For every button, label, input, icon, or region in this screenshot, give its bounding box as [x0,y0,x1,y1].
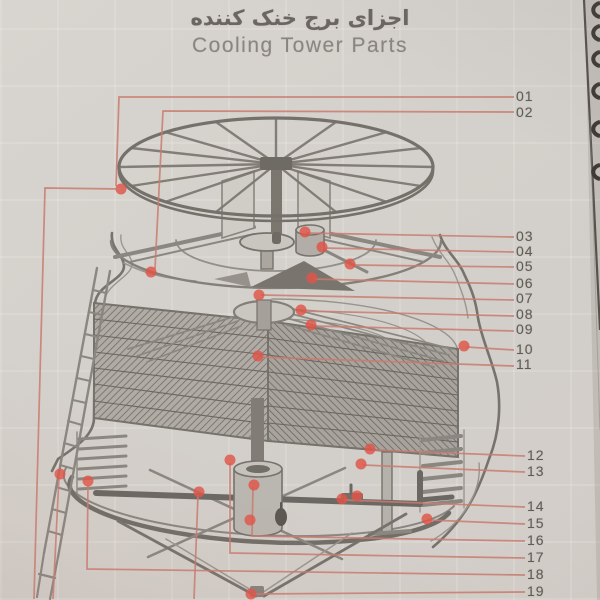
leader-line [155,111,514,269]
leader-dot [194,487,205,498]
leader-line [303,311,514,316]
leader-dot [146,267,157,278]
leader-dot [300,227,311,238]
part-label: 11 [516,355,533,373]
leader-dot [245,515,256,526]
leader-dot [55,469,66,480]
part-label: 15 [527,514,545,532]
sprinkler-head [240,233,294,269]
part-label: 05 [516,257,534,275]
leader-line [313,326,514,331]
part-label: 17 [527,548,545,566]
leader-dot [337,494,348,505]
leader-dot [225,455,236,466]
leader-dot [249,480,260,491]
leader-line [429,520,525,524]
part-label: 19 [527,582,545,600]
fill-media [94,303,458,457]
leader-dot [352,491,363,502]
leader-line [466,347,514,350]
photographed-catalog-page: { "header": { "title_fa": "اجزای برج خنک… [0,0,600,600]
sump-tank [234,469,282,536]
part-label: 02 [516,103,534,121]
leader-dot [459,341,470,352]
float-ball [275,508,287,526]
cooling-tower-diagram [0,0,600,600]
fan-hub [260,157,292,170]
fan-guard [119,118,433,221]
part-label: 18 [527,565,545,583]
leader-line [352,265,514,267]
catalog-page: اجزای برج خنک کننده Cooling Tower Parts [0,0,600,600]
leader-dot [422,514,433,525]
leader-dot [307,273,318,284]
leader-dot [345,259,356,270]
leader-line [254,592,525,594]
part-label: 16 [527,531,545,549]
leader-dot [83,476,94,487]
leader-dot [306,320,317,331]
leader-line [194,495,198,599]
leader-dot [356,459,367,470]
leader-dot [296,305,307,316]
part-label: 13 [527,462,545,480]
leader-dot [365,444,376,455]
leader-dot [254,290,265,301]
leader-dot [246,589,257,600]
part-label: 14 [527,497,545,515]
riser-column [251,398,264,468]
part-label: 09 [516,320,534,338]
leader-dot [317,242,328,253]
leader-dot [253,351,264,362]
